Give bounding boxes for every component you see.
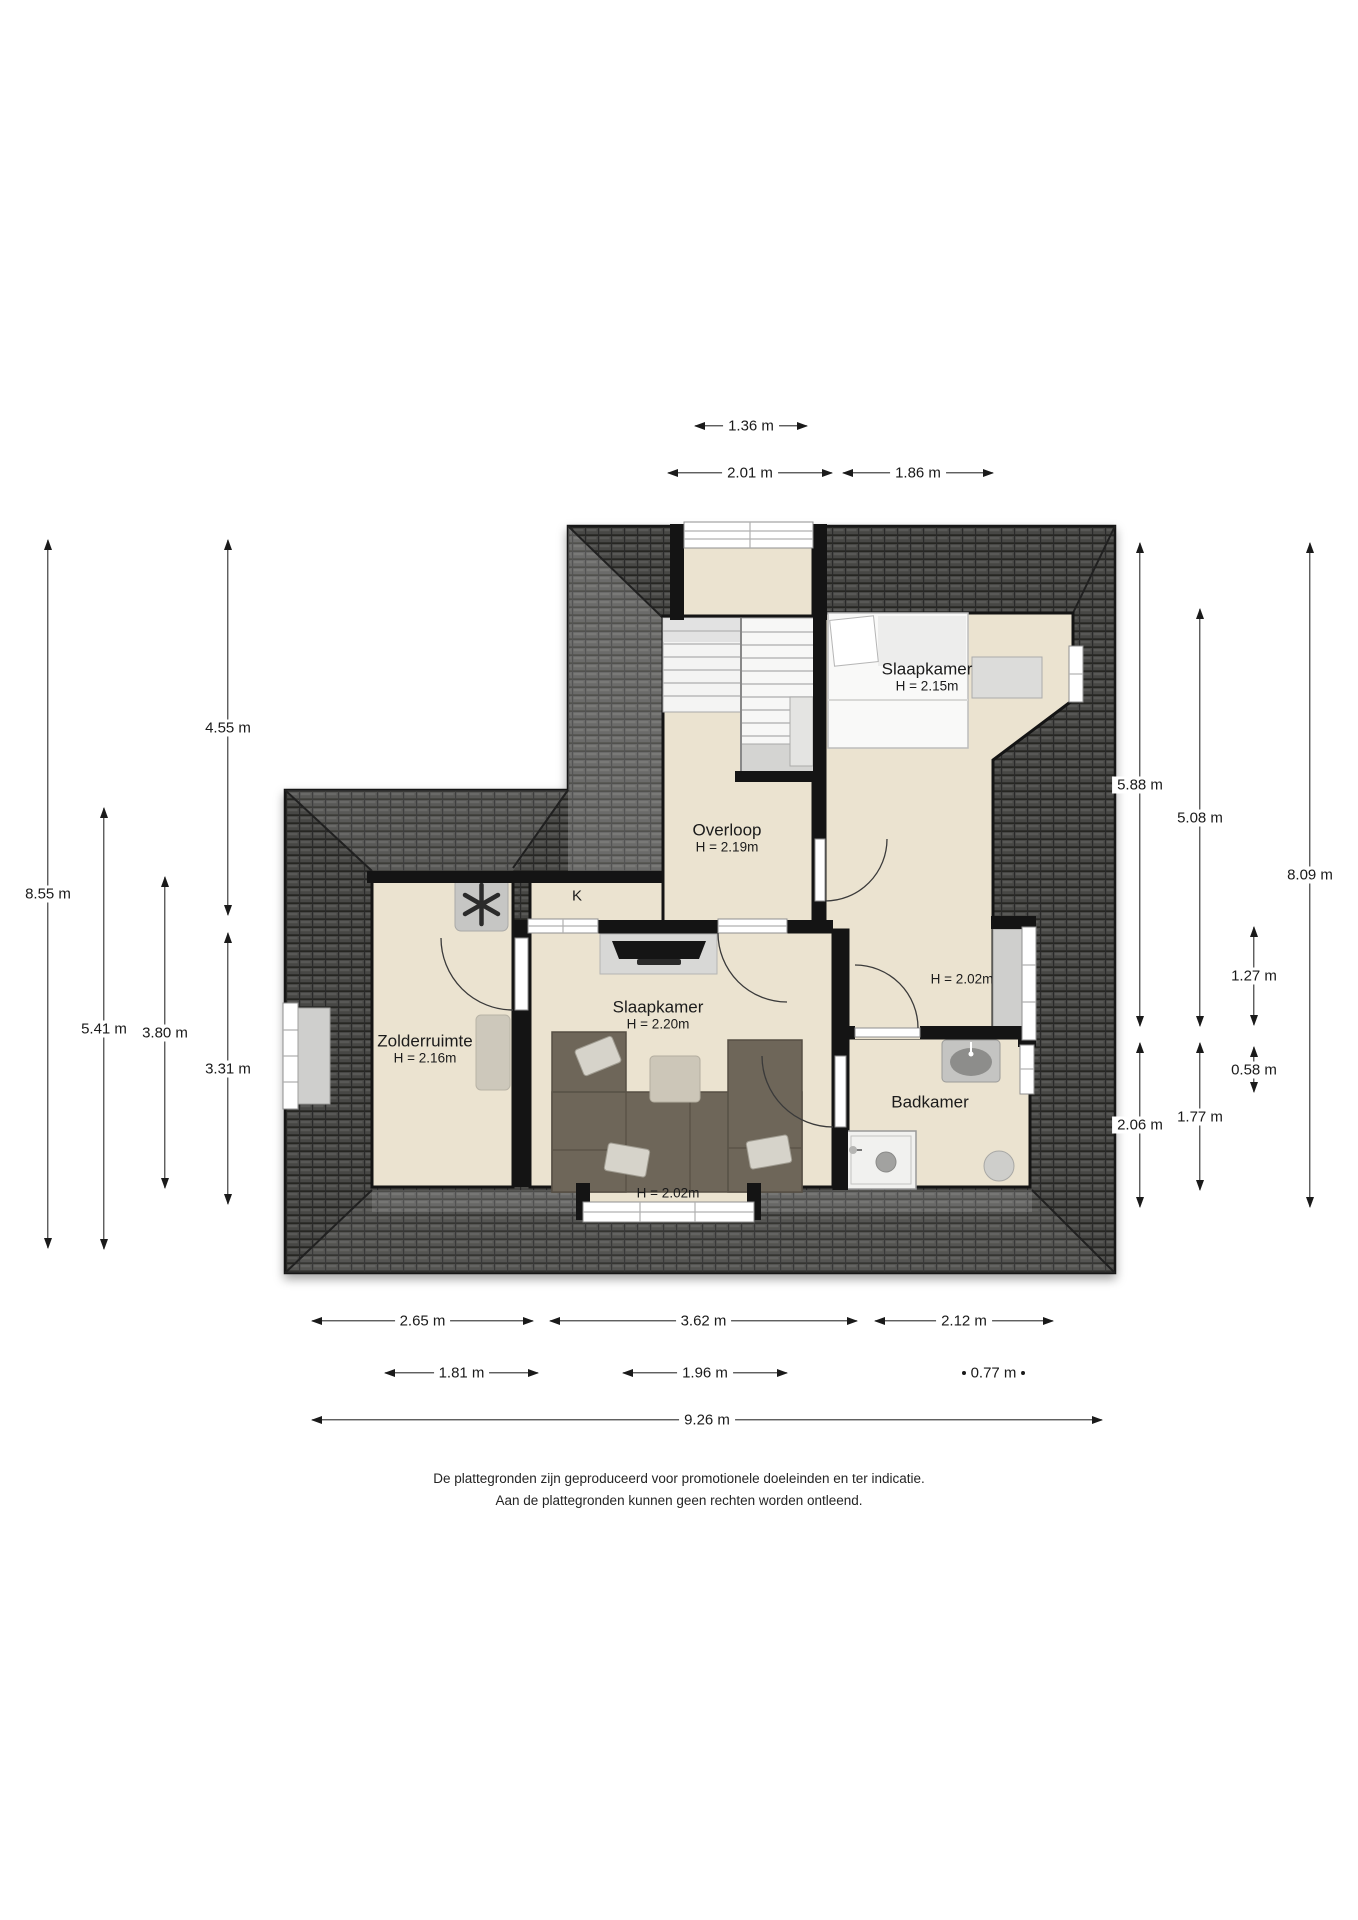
room-height: H = 2.19m xyxy=(693,840,762,856)
label-zolderruimte: Zolderruimte H = 2.16m xyxy=(377,1032,472,1067)
disclaimer: De plattegronden zijn geproduceerd voor … xyxy=(0,1468,1358,1512)
dim-right-8-09-m: 8.09 m xyxy=(1304,543,1316,1207)
dim-left-3-80-m: 3.80 m xyxy=(159,877,171,1188)
tv-unit xyxy=(600,934,717,974)
dim-right-5-08-m: 5.08 m xyxy=(1194,609,1206,1026)
sink xyxy=(942,1040,1000,1082)
room-name: Overloop xyxy=(693,821,762,840)
label-raamhoogte-onder: H = 2.02m xyxy=(637,1186,700,1201)
door-frame-badkamer-noord xyxy=(855,1028,920,1037)
room-height: H = 2.15m xyxy=(882,679,973,695)
label-overloop: Overloop H = 2.19m xyxy=(693,821,762,856)
label-slaapkamer-midden: Slaapkamer H = 2.20m xyxy=(613,998,704,1033)
label-kast: K xyxy=(572,887,582,906)
dim-bottom-3-62-m: 3.62 m xyxy=(550,1315,857,1327)
dim-bottom-1-81-m: 1.81 m xyxy=(385,1367,538,1379)
window-dormer-rechts xyxy=(1022,927,1036,1040)
disclaimer-line1: De plattegronden zijn geproduceerd voor … xyxy=(0,1468,1358,1490)
label-raamhoogte-rechts: H = 2.02m xyxy=(931,972,994,987)
dim-right-2-06-m: 2.06 m xyxy=(1134,1043,1146,1207)
room-vestibule xyxy=(682,546,813,620)
rug xyxy=(476,1015,510,1090)
label-badkamer: Badkamer xyxy=(891,1093,968,1112)
door-frame-badkamer-west xyxy=(835,1056,846,1127)
disclaimer-line2: Aan de plattegronden kunnen geen rechten… xyxy=(0,1490,1358,1512)
room-name: Badkamer xyxy=(891,1093,968,1112)
room-name: K xyxy=(572,887,582,906)
shower xyxy=(846,1131,916,1189)
window-top xyxy=(684,522,813,548)
label-slaapkamer-boven: Slaapkamer H = 2.15m xyxy=(882,660,973,695)
door-frame-slaapkamer-boven xyxy=(815,839,825,901)
room-kast xyxy=(530,881,663,922)
dim-right-1-77-m: 1.77 m xyxy=(1194,1043,1206,1190)
dim-top-1-86-m: 1.86 m xyxy=(843,467,993,479)
closet-overloop xyxy=(790,697,813,766)
dim-right-5-88-m: 5.88 m xyxy=(1134,543,1146,1026)
room-name: Slaapkamer xyxy=(882,660,973,679)
dim-top-1-36-m: 1.36 m xyxy=(695,420,807,432)
dim-bottom-1-96-m: 1.96 m xyxy=(623,1367,787,1379)
fan-icon xyxy=(455,878,508,931)
dim-left-8-55-m: 8.55 m xyxy=(42,540,54,1248)
dim-top-2-01-m: 2.01 m xyxy=(668,467,832,479)
dim-left-5-41-m: 5.41 m xyxy=(98,808,110,1249)
side-table xyxy=(650,1056,700,1102)
dim-bottom-0-77-m: 0.77 m xyxy=(962,1367,1025,1379)
toilet xyxy=(984,1151,1014,1181)
room-name: Zolderruimte xyxy=(377,1032,472,1051)
window-shaft-zolderruimte xyxy=(298,1008,330,1104)
dim-bottom-2-65-m: 2.65 m xyxy=(312,1315,533,1327)
dim-right-1-27-m: 1.27 m xyxy=(1248,927,1260,1025)
floorplan-drawing xyxy=(0,0,1358,1920)
room-height: H = 2.16m xyxy=(377,1051,472,1067)
dresser xyxy=(972,657,1042,698)
room-name: Slaapkamer xyxy=(613,998,704,1017)
floorplan-page: Overloop H = 2.19m Slaapkamer H = 2.15m … xyxy=(0,0,1358,1920)
dim-left-4-55-m: 4.55 m xyxy=(222,540,234,915)
room-height: H = 2.20m xyxy=(613,1017,704,1033)
dim-bottom-9-26-m: 9.26 m xyxy=(312,1414,1102,1426)
dim-right-0-58-m: 0.58 m xyxy=(1248,1047,1260,1092)
dim-bottom-2-12-m: 2.12 m xyxy=(875,1315,1053,1327)
door-frame-zolderruimte xyxy=(515,938,528,1010)
dim-left-3-31-m: 3.31 m xyxy=(222,933,234,1204)
dormer-recess-right xyxy=(993,929,1022,1038)
